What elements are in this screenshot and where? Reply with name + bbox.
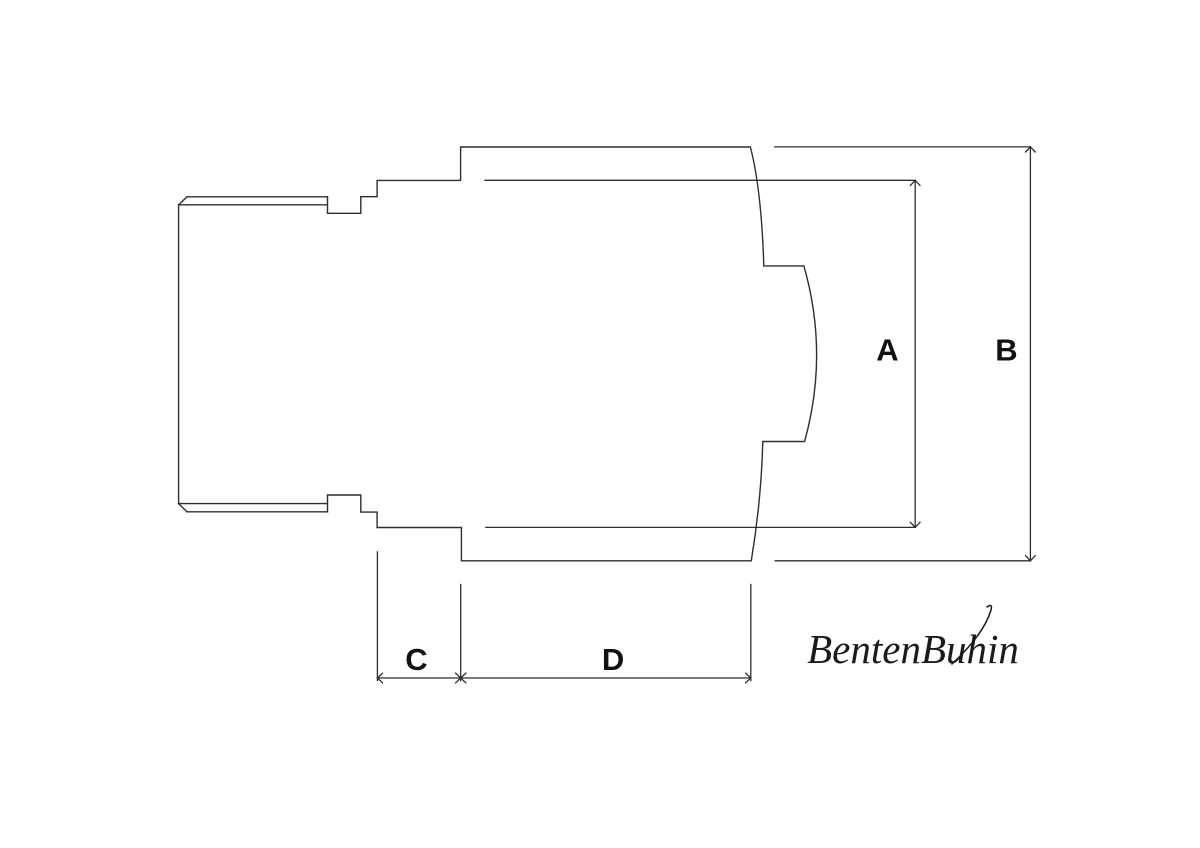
svg-text:A: A [876,333,898,368]
svg-text:C: C [405,642,427,677]
svg-text:B: B [995,333,1017,368]
svg-text:BentenBuhin: BentenBuhin [807,626,1019,672]
svg-text:D: D [602,642,624,677]
